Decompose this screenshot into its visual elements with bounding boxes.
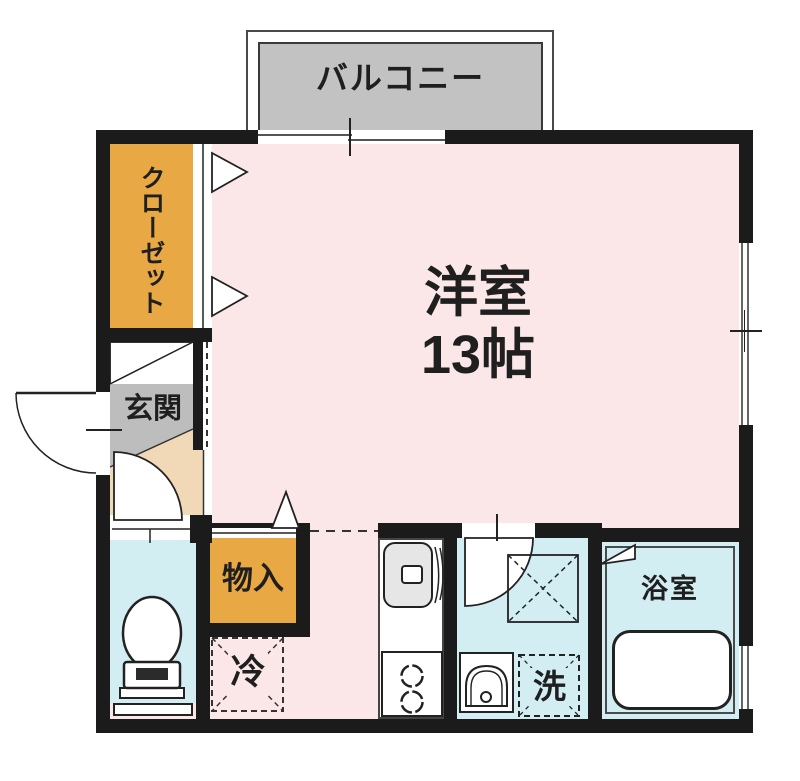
closet-label: クローゼット (128, 158, 174, 322)
toilet-room (110, 540, 196, 703)
wall-left-upper (96, 130, 110, 392)
storage-label: 物入 (210, 561, 296, 597)
refrigerator-label: 冷 (228, 653, 268, 694)
wall-right-middle (739, 425, 753, 646)
bathtub (612, 630, 732, 710)
wall-kitchen-washroom (444, 523, 457, 719)
right-window-opening (739, 243, 753, 425)
closet-door-track (193, 144, 212, 328)
wall-right-upper (739, 130, 753, 243)
balcony-sliding-door-opening (258, 130, 445, 144)
laundry-label: 洗 (531, 668, 568, 706)
wall-top-right (445, 130, 753, 144)
wall-below-closet (96, 328, 212, 342)
wall-right-lower (739, 709, 753, 733)
wall-bottom (96, 719, 753, 733)
wall-washroom-bathroom (588, 523, 602, 719)
main-room-name: 洋室 (378, 262, 578, 324)
main-room-size: 13帖 (378, 324, 578, 386)
wall-storage-right (296, 523, 310, 637)
shoe-cabinet (110, 342, 195, 386)
washroom-door-opening (462, 523, 535, 538)
toilet-door-threshold (110, 515, 190, 540)
entrance-door-opening (96, 392, 110, 475)
bathroom-window-opening (739, 646, 753, 709)
entrance-label: 玄関 (112, 393, 194, 426)
balcony-label: バルコニー (258, 60, 543, 97)
wall-storage-bottom (196, 623, 310, 637)
wall-left-lower (96, 475, 110, 733)
main-room-label: 洋室 13帖 (378, 262, 578, 386)
toilet-shelf (113, 703, 193, 716)
storage-door-track (212, 528, 296, 538)
hall-edge-strip (203, 342, 212, 515)
washbasin-cabinet (459, 652, 514, 713)
wall-entrance-right (193, 342, 203, 450)
bathroom-label: 浴室 (605, 574, 735, 605)
kitchen-counter (378, 538, 444, 719)
wall-bathroom-top (602, 528, 739, 542)
floorplan-canvas: バルコニー 洋室 13帖 クローゼット 玄関 物入 冷 洗 浴室 (0, 0, 800, 781)
wall-top-left (96, 130, 258, 144)
